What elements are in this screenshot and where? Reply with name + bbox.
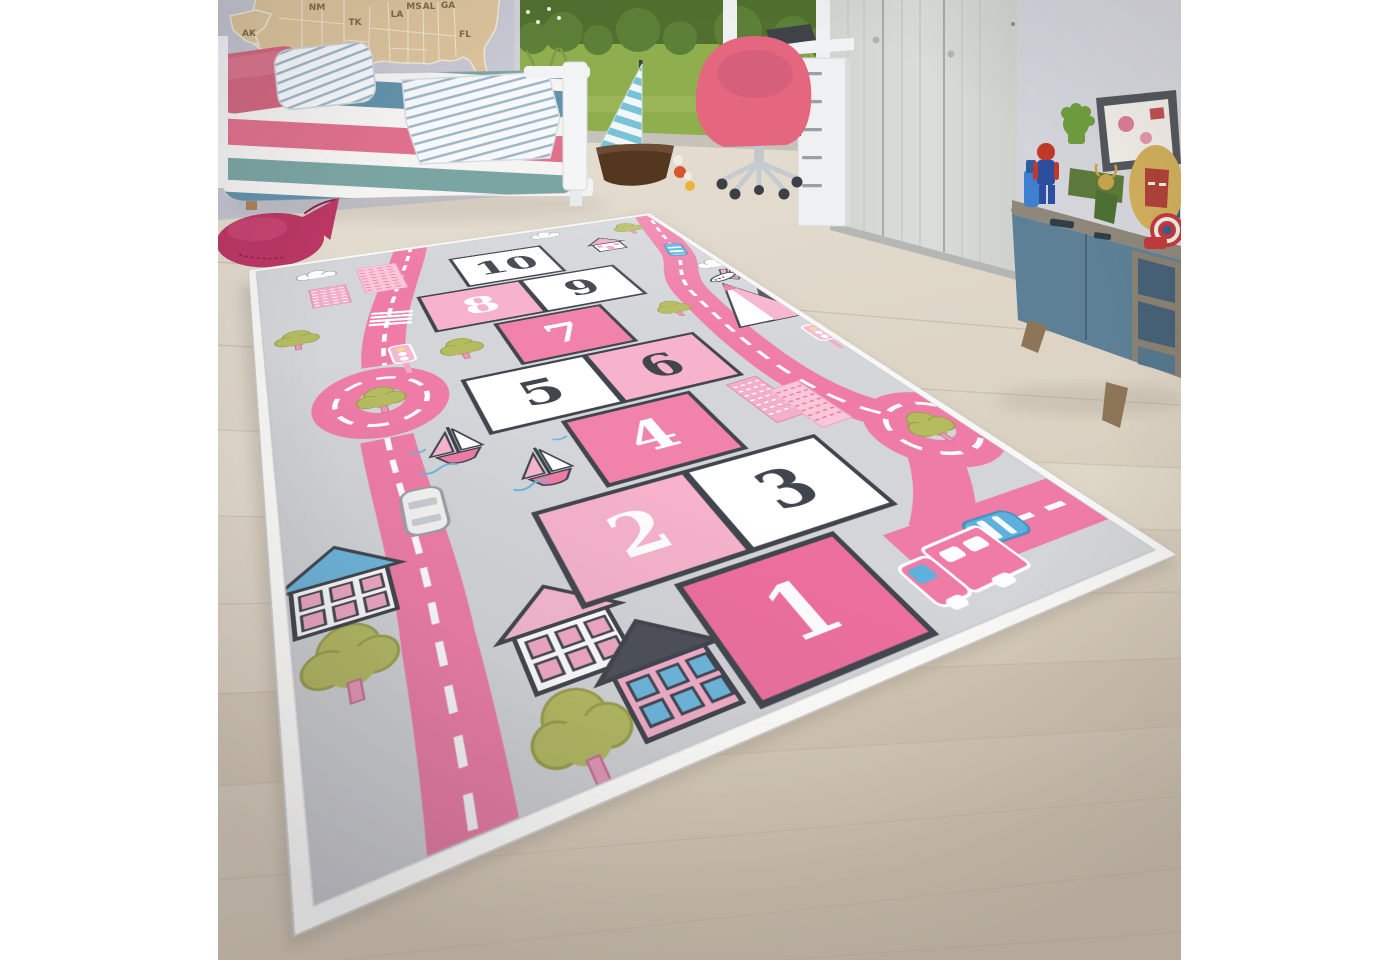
map-label-fl: FL — [459, 30, 471, 40]
product-photo-page: AK NM TK LA MS AL GA FL — [0, 0, 1400, 960]
bed-folded-sheet — [402, 72, 560, 164]
map-label-tk: TK — [348, 18, 362, 28]
bed-headboard-post — [218, 36, 228, 188]
wardrobe-knob — [873, 37, 880, 44]
bed-footboard-rail — [524, 66, 590, 78]
map-label-ak: AK — [242, 29, 257, 39]
map-label-la: LA — [391, 10, 404, 20]
chair-seat-inner — [717, 50, 793, 98]
map-label-ms: MS — [406, 2, 421, 12]
map-label-nm: NM — [309, 3, 326, 13]
wardrobe-knob — [948, 51, 955, 58]
red-toy-car — [1144, 237, 1167, 249]
map-label-al: AL — [423, 2, 436, 12]
map-label-ga: GA — [441, 1, 455, 11]
bed-footboard-post — [563, 62, 587, 190]
bed-pillow-striped — [273, 41, 377, 111]
room-photo: AK NM TK LA MS AL GA FL — [218, 0, 1181, 960]
